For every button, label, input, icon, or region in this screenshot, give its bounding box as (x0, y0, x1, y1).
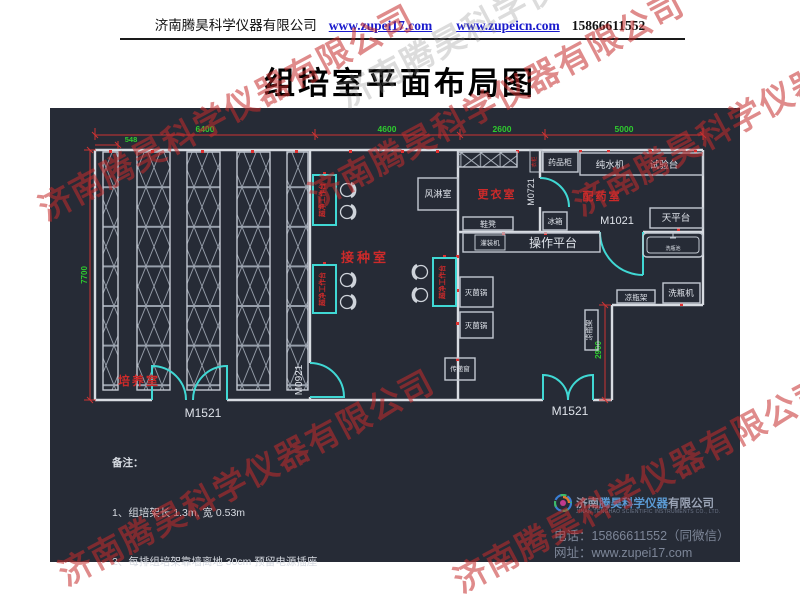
water-machine-label: 纯水机 (596, 159, 625, 171)
dim-7700: 7700 (80, 266, 89, 284)
dim-548: 548 (125, 135, 138, 144)
door-m0921 (310, 363, 344, 397)
door-label-m1521b: M1521 (552, 404, 589, 418)
wardrobe-label: 衣柜 (530, 156, 538, 168)
door-label-m0721: M0721 (526, 178, 536, 206)
header: 济南腾昊科学仪器有限公司www.zupei17.comwww.zupeicn.c… (0, 14, 800, 34)
walls (95, 150, 703, 400)
test-bench-label: 试验台 (650, 159, 679, 171)
changing-room-label: 更衣室 (478, 187, 517, 201)
door-m1521b-left (543, 375, 568, 400)
sink-label: 洗瓶池 (665, 245, 680, 252)
doors (152, 178, 643, 400)
clean-bench-label-2: 超净工作台 (318, 272, 327, 307)
fridge-label: 冰箱 (548, 216, 563, 226)
dim-2600: 2600 (493, 124, 512, 134)
door-label-m1021: M1021 (600, 215, 634, 227)
note-item: 1、组培架长 1.3m, 宽 0.53m (112, 505, 439, 522)
air-shower-label: 风淋室 (424, 188, 451, 199)
dispensing-room-label: 配药室 (583, 189, 622, 203)
header-url-1[interactable]: www.zupei17.com (329, 18, 433, 33)
note-item: 2、每排组培架靠墙离地 30cm 预留电源插座 (112, 554, 439, 571)
page: 济南腾昊科学仪器有限公司www.zupei17.comwww.zupeicn.c… (0, 0, 800, 600)
door-m1021 (600, 232, 643, 275)
equipment-boxes (418, 150, 703, 380)
filling-machine-label: 灌装机 (480, 238, 500, 247)
stools (341, 183, 428, 309)
shoe-bench-label: 鞋凳 (480, 219, 496, 229)
dim-6400: 6400 (196, 124, 215, 134)
door-m0721 (540, 178, 569, 207)
equipment-labels: 风淋室 衣柜 药品柜 纯水机 试验台 鞋凳 冰箱 天平台 洗瓶池 灌装机 操作平… (424, 156, 694, 373)
dim-4600: 4600 (378, 124, 397, 134)
sterilizer-label-2: 灭菌锅 (465, 320, 488, 330)
door-m1521b-right (568, 375, 593, 400)
notes-block: 备注： 1、组培架长 1.3m, 宽 0.53m 2、每排组培架靠墙离地 30c… (112, 422, 439, 600)
door-label-m1521a: M1521 (185, 406, 222, 420)
pass-window-label: 传递窗 (450, 364, 470, 373)
balance-label: 天平台 (662, 212, 691, 224)
company-logo-icon (554, 494, 572, 512)
header-company: 济南腾昊科学仪器有限公司 (155, 18, 317, 33)
clean-bench-label-1: 超净工作台 (318, 183, 327, 218)
door-label-m0921: M0921 (294, 364, 305, 395)
bottle-rack-v-label: 凉瓶架 (585, 320, 594, 341)
medicine-cabinet-label: 药品柜 (548, 157, 572, 167)
bottle-washer-label: 洗瓶机 (668, 288, 694, 298)
dim-5000: 5000 (615, 124, 634, 134)
header-url-2[interactable]: www.zupeicn.com (456, 18, 560, 33)
footer-company-english: JINAN TENGHAO SCIENTIFIC INSTRUMENTS CO.… (576, 509, 720, 515)
notes-title: 备注： (112, 455, 439, 472)
page-title: 组培室平面布局图 (0, 58, 800, 103)
operation-platform-label: 操作平台 (529, 235, 577, 250)
culture-room-label: 培养室 (118, 373, 160, 388)
sterilizer-label-1: 灭菌锅 (465, 287, 488, 297)
header-divider (120, 38, 685, 40)
bottle-rack-h-label: 凉瓶架 (625, 292, 648, 302)
inoculation-room-label: 接种室 (341, 250, 389, 265)
footer-website[interactable]: 网址：www.zupei17.com (554, 542, 692, 561)
clean-bench-label-3: 超净工作台 (438, 265, 447, 300)
header-phone: 15866611552 (572, 18, 646, 33)
cad-panel: 6400 4600 2600 5000 548 7700 2900 (50, 108, 740, 562)
culture-racks (103, 152, 308, 390)
